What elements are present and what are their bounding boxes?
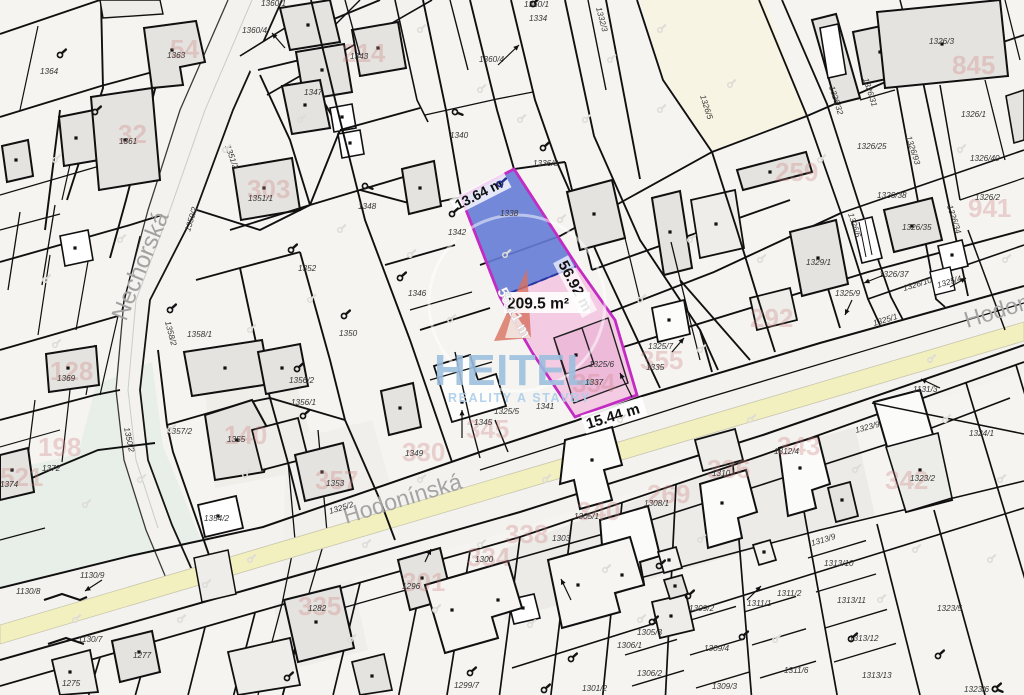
svg-text:1282: 1282 (308, 604, 327, 613)
svg-text:1335: 1335 (646, 363, 665, 372)
svg-text:1325/9: 1325/9 (835, 289, 860, 298)
svg-text:1326/3: 1326/3 (929, 37, 954, 46)
svg-text:1360/1: 1360/1 (261, 0, 286, 8)
svg-text:845: 845 (952, 50, 995, 80)
svg-text:1323/5: 1323/5 (937, 604, 962, 613)
svg-text:1356/1: 1356/1 (291, 398, 316, 407)
svg-text:1309/3: 1309/3 (712, 682, 737, 691)
svg-text:1340: 1340 (450, 131, 469, 140)
svg-text:1300: 1300 (475, 555, 494, 564)
svg-text:1369: 1369 (57, 374, 76, 383)
svg-text:340: 340 (577, 496, 620, 526)
svg-text:1301/2: 1301/2 (582, 684, 607, 693)
svg-text:259: 259 (775, 157, 818, 187)
svg-text:1349: 1349 (405, 449, 424, 458)
svg-text:338: 338 (505, 519, 548, 549)
svg-text:1350: 1350 (339, 329, 358, 338)
svg-text:1312/4: 1312/4 (774, 447, 799, 456)
svg-text:1275: 1275 (62, 679, 81, 688)
svg-text:198: 198 (38, 432, 81, 462)
svg-text:1305/3: 1305/3 (637, 628, 662, 637)
svg-text:1309/4: 1309/4 (704, 644, 729, 653)
svg-text:1326/40: 1326/40 (970, 154, 1000, 163)
svg-text:1311/6: 1311/6 (784, 666, 809, 675)
svg-text:1354/2: 1354/2 (204, 514, 229, 523)
svg-text:1313/13: 1313/13 (862, 671, 892, 680)
svg-text:1326/2: 1326/2 (975, 193, 1000, 202)
svg-text:1355: 1355 (227, 435, 246, 444)
svg-text:1130/9: 1130/9 (80, 571, 105, 580)
svg-text:292: 292 (750, 303, 793, 333)
svg-text:1374: 1374 (0, 480, 19, 489)
svg-text:1324/1: 1324/1 (969, 429, 994, 438)
svg-text:1313/10: 1313/10 (824, 559, 854, 568)
svg-text:1364: 1364 (40, 67, 59, 76)
svg-text:1299/7: 1299/7 (454, 681, 479, 690)
svg-text:1341: 1341 (536, 402, 554, 411)
svg-text:1342: 1342 (448, 228, 467, 237)
svg-text:1313/11: 1313/11 (837, 596, 866, 605)
svg-text:1343: 1343 (350, 52, 369, 61)
svg-text:343: 343 (777, 431, 820, 461)
svg-text:1306/1: 1306/1 (617, 641, 642, 650)
svg-text:1308/1: 1308/1 (644, 499, 669, 508)
svg-text:1323/2: 1323/2 (910, 474, 935, 483)
svg-text:1326/37: 1326/37 (879, 270, 909, 279)
svg-text:1345: 1345 (474, 418, 493, 427)
svg-text:1337: 1337 (585, 378, 604, 387)
svg-text:1352: 1352 (298, 264, 317, 273)
svg-text:1311/2: 1311/2 (777, 589, 802, 598)
svg-text:1347: 1347 (304, 88, 323, 97)
svg-text:1360/4: 1360/4 (242, 26, 267, 35)
svg-text:1346: 1346 (408, 289, 427, 298)
svg-text:1303: 1303 (552, 534, 571, 543)
svg-text:1325/7: 1325/7 (648, 342, 673, 351)
svg-text:1336/3: 1336/3 (533, 159, 558, 168)
svg-text:1296: 1296 (402, 582, 421, 591)
svg-text:1130/8: 1130/8 (16, 587, 41, 596)
svg-text:1326/35: 1326/35 (902, 223, 932, 232)
svg-text:1326/38: 1326/38 (877, 191, 907, 200)
svg-text:1361: 1361 (119, 137, 137, 146)
svg-text:1329/1: 1329/1 (806, 258, 831, 267)
svg-text:1353: 1353 (326, 479, 345, 488)
svg-text:1326/1: 1326/1 (961, 110, 986, 119)
svg-text:1351/1: 1351/1 (248, 194, 273, 203)
svg-text:1311/1: 1311/1 (747, 599, 771, 608)
svg-text:1363: 1363 (167, 51, 186, 60)
svg-text:1348: 1348 (358, 202, 377, 211)
svg-text:1326/25: 1326/25 (857, 142, 887, 151)
svg-text:1356/2: 1356/2 (289, 376, 314, 385)
svg-text:1338: 1338 (500, 209, 519, 218)
svg-text:1325/6: 1325/6 (589, 360, 614, 369)
svg-text:1310: 1310 (712, 469, 731, 478)
svg-text:1323/6: 1323/6 (964, 685, 989, 694)
svg-text:1372: 1372 (42, 464, 61, 473)
svg-text:1325/5: 1325/5 (494, 407, 519, 416)
svg-text:1305/1: 1305/1 (574, 512, 599, 521)
svg-text:1334: 1334 (529, 14, 548, 23)
svg-text:HEITEL: HEITEL (434, 346, 593, 395)
svg-text:1309/2: 1309/2 (689, 604, 714, 613)
svg-text:1277: 1277 (133, 651, 152, 660)
svg-text:1306/2: 1306/2 (637, 669, 662, 678)
svg-text:1131/3: 1131/3 (913, 385, 938, 394)
svg-text:1358/1: 1358/1 (187, 330, 212, 339)
svg-text:REALITY A STAVBY: REALITY A STAVBY (448, 391, 591, 405)
